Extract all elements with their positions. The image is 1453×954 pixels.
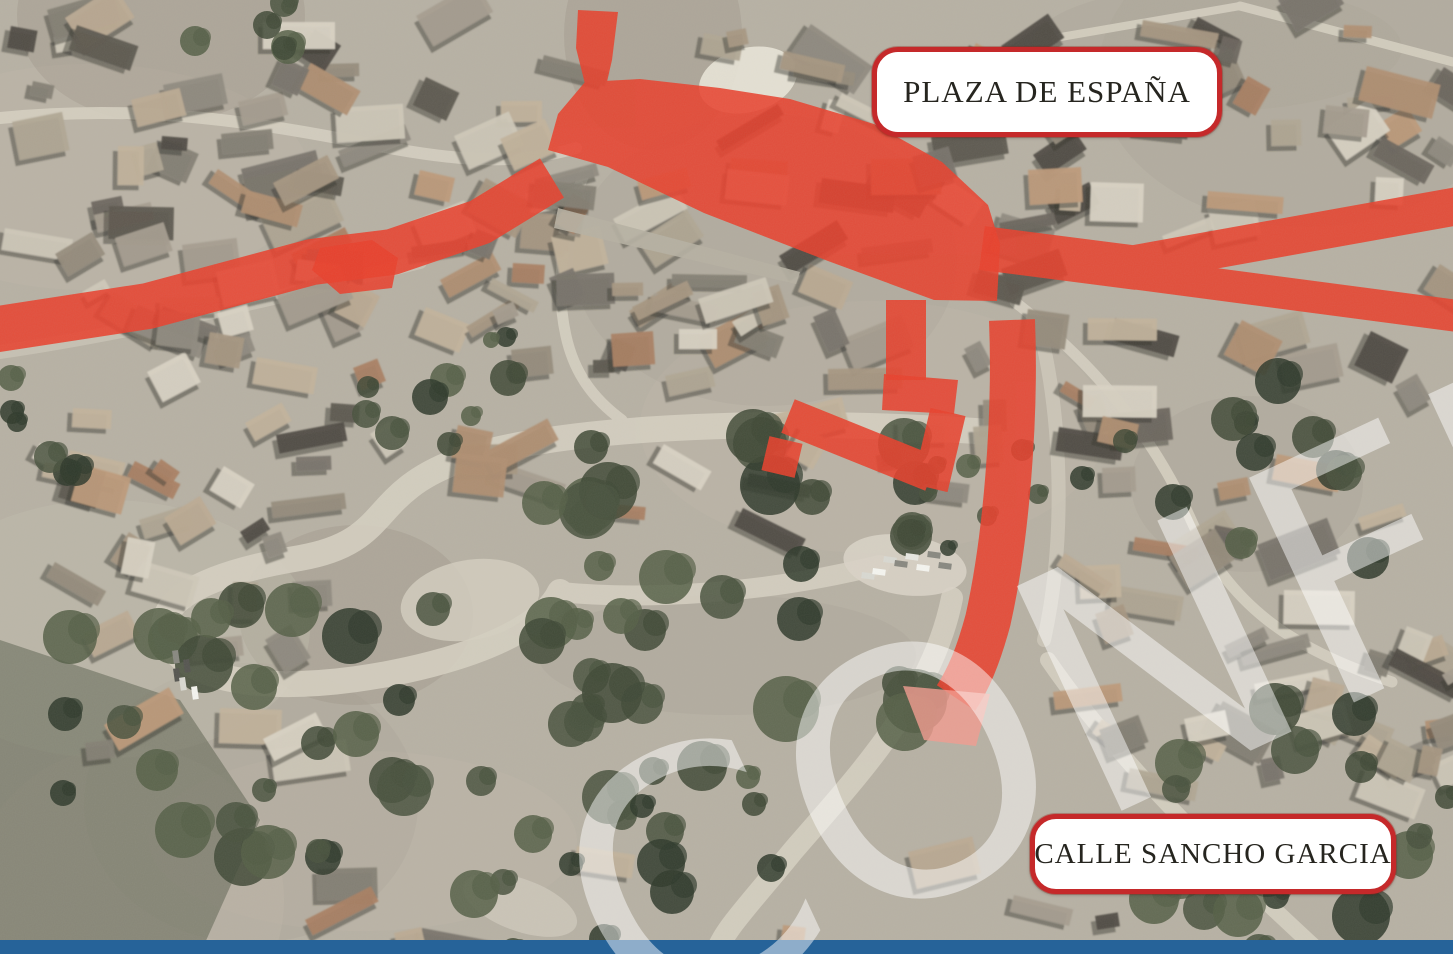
street-label-plaza-de-espana: PLAZA DE ESPAÑA xyxy=(872,47,1222,137)
street-label-calle-sancho-garcia: CALLE SANCHO GARCIA xyxy=(1030,814,1396,894)
aerial-map: CONFI PLAZA DE ESPAÑA CALLE SANCHO GARCI… xyxy=(0,0,1453,954)
aerial-photo-canvas: CONFI xyxy=(0,0,1453,954)
